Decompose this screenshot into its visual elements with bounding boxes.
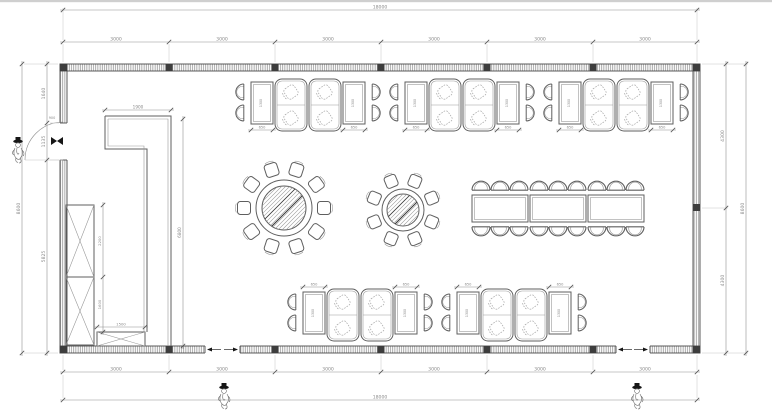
hatch-line bbox=[407, 194, 439, 226]
round-table-chair bbox=[318, 202, 333, 215]
round-table-chair bbox=[241, 222, 261, 241]
cabinet-cross bbox=[66, 205, 94, 277]
table-length-label: 1300 bbox=[259, 99, 263, 107]
round-table-chair bbox=[263, 160, 280, 178]
chair-seat bbox=[288, 162, 304, 178]
dimension-label: 6800 bbox=[177, 227, 182, 238]
chair-back-inner bbox=[424, 317, 431, 328]
cushion-back bbox=[334, 303, 339, 310]
chair-back-inner bbox=[680, 107, 687, 118]
round-table-chair bbox=[307, 174, 327, 193]
column-post bbox=[484, 346, 491, 353]
table-length-label: 1300 bbox=[311, 309, 315, 317]
hatch-line bbox=[226, 186, 270, 230]
cushion-outline bbox=[369, 320, 386, 337]
dimension-label: 8600 bbox=[740, 203, 746, 215]
cushion-back bbox=[590, 119, 595, 126]
booth-seat-cushion bbox=[435, 84, 454, 102]
chair-back-inner bbox=[237, 86, 244, 97]
table-length-label: 1300 bbox=[505, 99, 509, 107]
dimension-label: 3000 bbox=[428, 36, 440, 42]
arc-chair bbox=[491, 227, 509, 236]
arc-chair bbox=[288, 294, 296, 310]
round-table-chair bbox=[263, 238, 280, 256]
dimension-label: 650 bbox=[659, 125, 667, 129]
dimension-label: 3000 bbox=[534, 36, 546, 42]
chair-back-inner bbox=[545, 107, 552, 118]
arc-chair bbox=[588, 181, 606, 190]
arc-chair bbox=[530, 181, 548, 190]
person-figure bbox=[13, 137, 25, 163]
chair-back-inner bbox=[545, 86, 552, 97]
dimension-label: 3000 bbox=[534, 366, 546, 372]
head bbox=[16, 143, 21, 148]
chair-back-inner bbox=[591, 227, 604, 235]
booth-seat-cushion bbox=[521, 294, 540, 312]
cushion-back bbox=[436, 119, 441, 126]
chair-back-inner bbox=[475, 182, 488, 190]
cushion-outline bbox=[471, 84, 488, 101]
dimension-label: 650 bbox=[311, 282, 319, 286]
chair-back-inner bbox=[372, 86, 379, 97]
dimension-label: 1135 bbox=[41, 136, 47, 148]
booth-seat-cushion bbox=[521, 320, 540, 338]
hatch-line bbox=[282, 186, 326, 230]
dimension-label: 3000 bbox=[639, 36, 651, 42]
hatch-line bbox=[218, 186, 262, 230]
arc-chair bbox=[530, 227, 548, 236]
hatch-line bbox=[274, 186, 318, 230]
cushion-outline bbox=[489, 294, 506, 311]
booth-seat-cushion bbox=[589, 110, 608, 128]
column-post bbox=[590, 346, 597, 353]
booth-seat-cushion bbox=[367, 294, 386, 312]
arc-chair bbox=[442, 315, 450, 331]
arc-chair bbox=[491, 181, 509, 190]
chair-back-inner bbox=[578, 296, 585, 307]
cushion-outline bbox=[591, 110, 608, 127]
cushion-outline bbox=[591, 84, 608, 101]
arc-chair bbox=[236, 105, 244, 121]
arc-chair bbox=[626, 227, 644, 236]
arc-chair bbox=[472, 227, 490, 236]
chair-back-inner bbox=[571, 182, 584, 190]
chair-back-inner bbox=[610, 182, 623, 190]
round-table-chair bbox=[241, 174, 261, 193]
arc-chair bbox=[544, 84, 552, 100]
chair-back-inner bbox=[424, 296, 431, 307]
dimension-label: 650 bbox=[413, 125, 421, 129]
furniture-layer: 1300650130065013006501300650130065013006… bbox=[218, 79, 688, 341]
cushion-back bbox=[316, 93, 321, 100]
dimension-label: 3000 bbox=[216, 366, 228, 372]
chair-seat bbox=[263, 238, 279, 254]
arc-chair bbox=[680, 105, 688, 121]
cushion-back bbox=[488, 303, 493, 310]
hatch-line bbox=[403, 194, 435, 226]
dimension-label: 3000 bbox=[428, 366, 440, 372]
cushion-outline bbox=[335, 294, 352, 311]
cushion-back bbox=[316, 119, 321, 126]
table-length-label: 1300 bbox=[465, 309, 469, 317]
column-post bbox=[60, 64, 67, 71]
hatch-line bbox=[250, 186, 294, 230]
hatch-line bbox=[359, 194, 391, 226]
hatch-line bbox=[306, 186, 350, 230]
column-post bbox=[590, 64, 597, 71]
arc-chair bbox=[578, 294, 586, 310]
round-table-chair bbox=[307, 222, 327, 241]
cushion-outline bbox=[523, 294, 540, 311]
cushion-outline bbox=[625, 84, 642, 101]
dimension-label: 4300 bbox=[720, 130, 726, 142]
chair-back-inner bbox=[533, 182, 546, 190]
cushion-outline bbox=[317, 110, 334, 127]
dimension-label: 650 bbox=[465, 282, 473, 286]
arc-chair bbox=[236, 84, 244, 100]
cushion-back bbox=[334, 329, 339, 336]
arc-chair bbox=[372, 105, 380, 121]
arc-chair bbox=[544, 105, 552, 121]
column-post bbox=[166, 346, 173, 353]
column-post bbox=[693, 64, 700, 71]
cushion-back bbox=[624, 119, 629, 126]
dimension-label: 3000 bbox=[322, 36, 334, 42]
arc-chair bbox=[288, 315, 296, 331]
column-post bbox=[272, 346, 279, 353]
arc-chair bbox=[568, 227, 586, 236]
partition-layer bbox=[66, 116, 171, 346]
chair-seat bbox=[243, 175, 261, 193]
dimension-label: 650 bbox=[259, 125, 267, 129]
person-figure bbox=[632, 383, 644, 409]
booth-seat-cushion bbox=[315, 84, 334, 102]
chair-seat bbox=[383, 231, 399, 247]
arc-chair bbox=[680, 84, 688, 100]
body-sketch bbox=[633, 394, 642, 405]
cushion-outline bbox=[335, 320, 352, 337]
arc-chair bbox=[549, 181, 567, 190]
dimension-label: 1900 bbox=[133, 104, 144, 109]
dimension-label: 650 bbox=[567, 125, 575, 129]
floor-plan-page: 1300650130065013006501300650130065013006… bbox=[0, 0, 772, 414]
chair-back-inner bbox=[578, 317, 585, 328]
column-post bbox=[378, 64, 385, 71]
chair-back-inner bbox=[513, 227, 526, 235]
round-table-chair bbox=[424, 214, 442, 230]
cushion-back bbox=[470, 93, 475, 100]
cushion-back bbox=[436, 93, 441, 100]
chair-seat bbox=[424, 190, 440, 206]
hatch-line bbox=[222, 186, 266, 230]
cushion-outline bbox=[369, 294, 386, 311]
arc-chair bbox=[549, 227, 567, 236]
round-table-chair bbox=[365, 214, 383, 230]
arc-chair bbox=[526, 84, 534, 100]
booth-seat-cushion bbox=[281, 84, 300, 102]
chair-back-inner bbox=[443, 296, 450, 307]
arc-chair bbox=[510, 227, 528, 236]
chair-back-inner bbox=[391, 107, 398, 118]
chair-back-inner bbox=[629, 227, 642, 235]
chair-seat bbox=[288, 238, 304, 254]
partition-wall-inner bbox=[108, 119, 168, 346]
column-post bbox=[166, 64, 173, 71]
hatch-line bbox=[383, 194, 415, 226]
tall-cabinet bbox=[66, 205, 94, 345]
booth-seat-cushion bbox=[589, 84, 608, 102]
arc-chair bbox=[424, 294, 432, 310]
table-length-label: 1300 bbox=[413, 99, 417, 107]
column-post bbox=[272, 64, 279, 71]
banquet-table-inner bbox=[475, 198, 526, 220]
arc-chair bbox=[607, 227, 625, 236]
chair-seat bbox=[407, 231, 423, 247]
arc-chair bbox=[526, 105, 534, 121]
cabinet-cross bbox=[97, 332, 145, 346]
chair-back bbox=[235, 204, 236, 213]
round-table-chair bbox=[382, 231, 398, 249]
chair-seat bbox=[318, 202, 331, 215]
hatch-line bbox=[395, 194, 427, 226]
cushion-back bbox=[368, 329, 373, 336]
dimension-label: 18000 bbox=[373, 394, 388, 400]
arc-chair bbox=[424, 315, 432, 331]
booth-seat-cushion bbox=[623, 84, 642, 102]
booth-seat-cushion bbox=[333, 320, 352, 338]
chair-back-inner bbox=[526, 107, 533, 118]
chair-seat bbox=[424, 214, 440, 230]
booth-seat-cushion bbox=[333, 294, 352, 312]
column-post bbox=[378, 346, 385, 353]
cushion-back bbox=[624, 93, 629, 100]
arc-chair bbox=[510, 181, 528, 190]
dimension-label: 3000 bbox=[110, 366, 122, 372]
booth-seat-cushion bbox=[469, 110, 488, 128]
chair-back-inner bbox=[680, 86, 687, 97]
chair-seat bbox=[238, 202, 251, 215]
hatch-line bbox=[266, 186, 310, 230]
body-sketch bbox=[14, 148, 23, 159]
cushion-outline bbox=[523, 320, 540, 337]
banquet-table bbox=[530, 195, 586, 222]
hatch-line bbox=[286, 186, 330, 230]
round-table-chair bbox=[288, 160, 305, 178]
cushion-back bbox=[470, 119, 475, 126]
booth-seat-cushion bbox=[281, 110, 300, 128]
dimension-label: 650 bbox=[557, 282, 565, 286]
floor-plan-drawing: 1300650130065013006501300650130065013006… bbox=[0, 0, 772, 414]
chair-back-inner bbox=[494, 182, 507, 190]
cushion-back bbox=[590, 93, 595, 100]
table-length-label: 1300 bbox=[403, 309, 407, 317]
cushion-outline bbox=[625, 110, 642, 127]
page-edge-shadow bbox=[0, 0, 772, 2]
banquet-table-inner bbox=[591, 198, 642, 220]
booth-seat-cushion bbox=[315, 110, 334, 128]
hatch-line bbox=[302, 186, 346, 230]
head bbox=[222, 389, 227, 394]
arc-chair bbox=[442, 294, 450, 310]
hatch-line bbox=[242, 186, 286, 230]
dimension-label: 4300 bbox=[720, 275, 726, 287]
partition-wall-outer bbox=[105, 116, 171, 346]
cushion-back bbox=[522, 303, 527, 310]
chair-seat bbox=[367, 214, 383, 230]
chair-seat bbox=[263, 162, 279, 178]
booth-seat-cushion bbox=[487, 320, 506, 338]
cushion-back bbox=[282, 119, 287, 126]
arc-chair bbox=[588, 227, 606, 236]
cushion-outline bbox=[471, 110, 488, 127]
chair-back-inner bbox=[494, 227, 507, 235]
cushion-outline bbox=[489, 320, 506, 337]
dimension-label: 3000 bbox=[322, 366, 334, 372]
cushion-outline bbox=[283, 110, 300, 127]
hatch-line bbox=[415, 194, 447, 226]
hatch-line bbox=[238, 186, 282, 230]
table-length-label: 1300 bbox=[557, 309, 561, 317]
chair-seat bbox=[407, 174, 423, 190]
booth-seat-cushion bbox=[487, 294, 506, 312]
chair-back-inner bbox=[237, 107, 244, 118]
arc-chair bbox=[568, 181, 586, 190]
chair-back-inner bbox=[391, 86, 398, 97]
dimension-label: 650 bbox=[351, 125, 359, 129]
chair-back-inner bbox=[526, 86, 533, 97]
column-post bbox=[693, 204, 700, 211]
hatch-line bbox=[391, 194, 423, 226]
booth-seat-cushion bbox=[435, 110, 454, 128]
grain-line bbox=[262, 186, 298, 222]
door-width-label: 900 bbox=[49, 116, 55, 120]
chair-seat bbox=[307, 222, 325, 240]
chair-back-inner bbox=[372, 107, 379, 118]
round-table-chair bbox=[365, 189, 383, 205]
dimension-label: 1600 bbox=[97, 299, 102, 309]
dimension-label: 1500 bbox=[116, 321, 126, 326]
chair-back-inner bbox=[443, 317, 450, 328]
round-table-chair bbox=[288, 238, 305, 256]
chair-back-inner bbox=[571, 227, 584, 235]
hatch-line bbox=[258, 186, 302, 230]
chair-seat bbox=[307, 175, 325, 193]
hatch-line bbox=[367, 194, 399, 226]
arc-chair bbox=[372, 84, 380, 100]
hatch-line bbox=[298, 186, 342, 230]
booth-seat-cushion bbox=[623, 110, 642, 128]
cushion-back bbox=[368, 303, 373, 310]
cushion-back bbox=[282, 93, 287, 100]
partition-wall-inner bbox=[108, 119, 144, 332]
cushion-outline bbox=[437, 84, 454, 101]
chair-back-inner bbox=[629, 182, 642, 190]
chair-back-inner bbox=[552, 227, 565, 235]
round-table-chair bbox=[407, 172, 423, 190]
dimension-label: 8600 bbox=[16, 203, 22, 215]
chair-back-inner bbox=[289, 317, 296, 328]
table-top-hatch bbox=[355, 194, 451, 226]
cushion-outline bbox=[437, 110, 454, 127]
cushion-outline bbox=[283, 84, 300, 101]
grain-line bbox=[268, 192, 306, 230]
chair-back-inner bbox=[289, 296, 296, 307]
dimension-label: 1640 bbox=[41, 88, 47, 100]
round-table-chair bbox=[382, 172, 398, 190]
chair-back-inner bbox=[475, 227, 488, 235]
body-sketch bbox=[220, 394, 229, 405]
round-table-chair bbox=[424, 189, 442, 205]
arc-chair bbox=[626, 181, 644, 190]
banquet-table bbox=[472, 195, 528, 222]
dimension-label: 2200 bbox=[97, 236, 102, 246]
person-figure bbox=[219, 383, 231, 409]
column-post bbox=[60, 346, 67, 353]
chair-back bbox=[332, 204, 333, 213]
cushion-back bbox=[522, 329, 527, 336]
arc-chair bbox=[607, 181, 625, 190]
head bbox=[635, 389, 640, 394]
round-table-chair bbox=[407, 231, 423, 249]
arc-chair bbox=[578, 315, 586, 331]
chair-seat bbox=[367, 190, 383, 206]
column-post bbox=[693, 346, 700, 353]
arc-chair bbox=[390, 84, 398, 100]
table-length-label: 1300 bbox=[351, 99, 355, 107]
cabinet-cross bbox=[66, 277, 94, 345]
chair-back-inner bbox=[552, 182, 565, 190]
column-post bbox=[484, 64, 491, 71]
dimension-label: 3000 bbox=[639, 366, 651, 372]
arc-chair bbox=[390, 105, 398, 121]
cushion-back bbox=[488, 329, 493, 336]
dimension-label: 650 bbox=[505, 125, 513, 129]
chair-back-inner bbox=[533, 227, 546, 235]
dimension-label: 18000 bbox=[373, 4, 388, 10]
chair-seat bbox=[383, 174, 399, 190]
table-length-label: 1300 bbox=[659, 99, 663, 107]
chair-back-inner bbox=[513, 182, 526, 190]
banquet-table-inner bbox=[533, 198, 584, 220]
dimension-label: 3000 bbox=[216, 36, 228, 42]
partition-wall-outer bbox=[105, 116, 147, 332]
booth-seat-cushion bbox=[469, 84, 488, 102]
arc-chair bbox=[472, 181, 490, 190]
dimension-label: 5825 bbox=[41, 251, 47, 263]
banquet-table bbox=[588, 195, 644, 222]
cushion-outline bbox=[317, 84, 334, 101]
chair-back-inner bbox=[591, 182, 604, 190]
booth-seat-cushion bbox=[367, 320, 386, 338]
chair-back-inner bbox=[610, 227, 623, 235]
round-table-chair bbox=[235, 202, 250, 215]
dimension-label: 650 bbox=[403, 282, 411, 286]
dimension-label: 3000 bbox=[110, 36, 122, 42]
table-length-label: 1300 bbox=[567, 99, 571, 107]
chair-seat bbox=[243, 222, 261, 240]
